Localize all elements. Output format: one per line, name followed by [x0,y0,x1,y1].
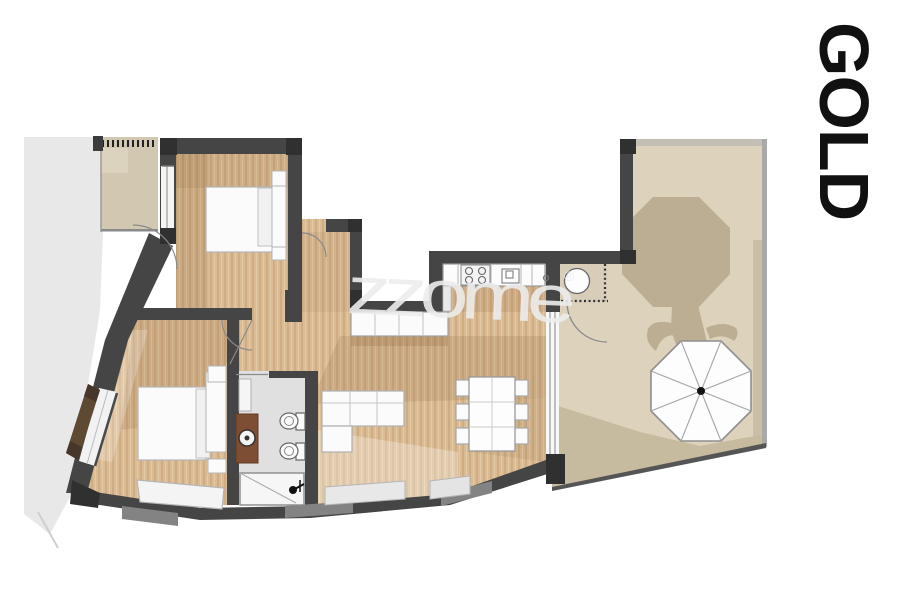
svg-text:®: ® [564,268,575,284]
svg-text:zzome: zzome [345,252,574,338]
svg-text:GOLD: GOLD [805,22,883,220]
